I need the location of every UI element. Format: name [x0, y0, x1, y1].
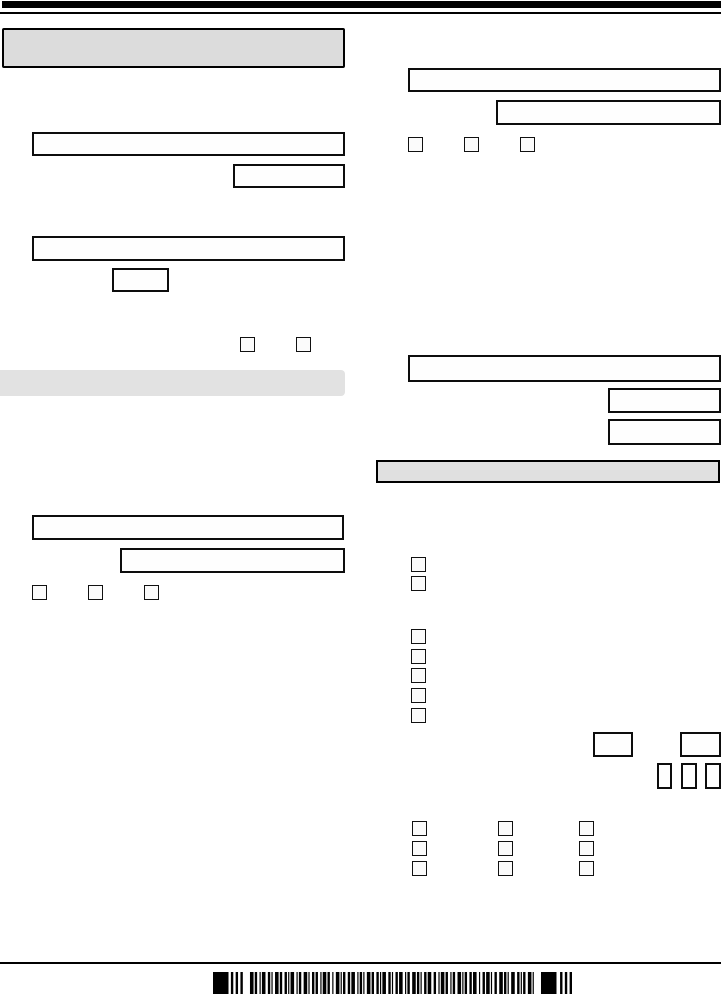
checkbox-grid-r1c1[interactable] [412, 821, 427, 836]
form-header-box [2, 28, 345, 68]
checkbox-right-row-3[interactable] [520, 137, 535, 152]
checkbox-right-row-2[interactable] [464, 137, 479, 152]
checkbox-grid-r3c2[interactable] [498, 861, 513, 876]
checkbox-grid-r1c3[interactable] [579, 821, 594, 836]
digit-box-2[interactable] [681, 763, 697, 789]
top-black-bar [2, 1, 721, 8]
input-box-left-4-small[interactable] [112, 268, 169, 292]
left-section-header [0, 370, 345, 396]
checkbox-grid-r2c1[interactable] [412, 841, 427, 856]
digit-box-3[interactable] [705, 763, 721, 789]
checkbox-stack5-1[interactable] [411, 629, 426, 644]
input-box-left-1[interactable] [32, 132, 345, 156]
checkbox-grid-r3c3[interactable] [579, 861, 594, 876]
input-box-right-1[interactable] [408, 68, 721, 92]
checkbox-grid-r2c3[interactable] [579, 841, 594, 856]
input-box-right-2[interactable] [496, 100, 721, 125]
input-box-right-3[interactable] [408, 355, 721, 382]
checkbox-left-row-3[interactable] [144, 585, 159, 600]
input-box-left-5[interactable] [32, 515, 344, 540]
checkbox-left-row-1[interactable] [32, 585, 47, 600]
checkbox-left-pair-1[interactable] [240, 337, 255, 352]
input-box-right-7-small[interactable] [680, 732, 721, 757]
input-box-right-5[interactable] [608, 419, 721, 445]
scanned-form-page [0, 0, 721, 996]
checkbox-stack2-1[interactable] [411, 557, 426, 572]
input-box-right-4[interactable] [608, 388, 721, 413]
barcode-icon [213, 972, 572, 994]
checkbox-grid-r3c1[interactable] [412, 861, 427, 876]
checkbox-stack5-5[interactable] [411, 708, 426, 723]
checkbox-grid-r1c2[interactable] [498, 821, 513, 836]
input-box-left-3[interactable] [32, 236, 345, 261]
checkbox-right-row-1[interactable] [408, 137, 423, 152]
digit-box-1[interactable] [657, 763, 672, 789]
checkbox-stack5-2[interactable] [411, 649, 426, 664]
checkbox-left-pair-2[interactable] [296, 337, 311, 352]
checkbox-stack5-3[interactable] [411, 668, 426, 683]
checkbox-left-row-2[interactable] [88, 585, 103, 600]
checkbox-stack5-4[interactable] [411, 688, 426, 703]
checkbox-grid-r2c2[interactable] [498, 841, 513, 856]
input-box-left-2[interactable] [233, 164, 345, 188]
top-rule [0, 12, 721, 14]
input-box-right-6-small[interactable] [593, 732, 633, 757]
bottom-rule [0, 962, 721, 964]
right-section-header [376, 460, 720, 483]
input-box-left-6[interactable] [120, 548, 345, 573]
checkbox-stack2-2[interactable] [411, 576, 426, 591]
